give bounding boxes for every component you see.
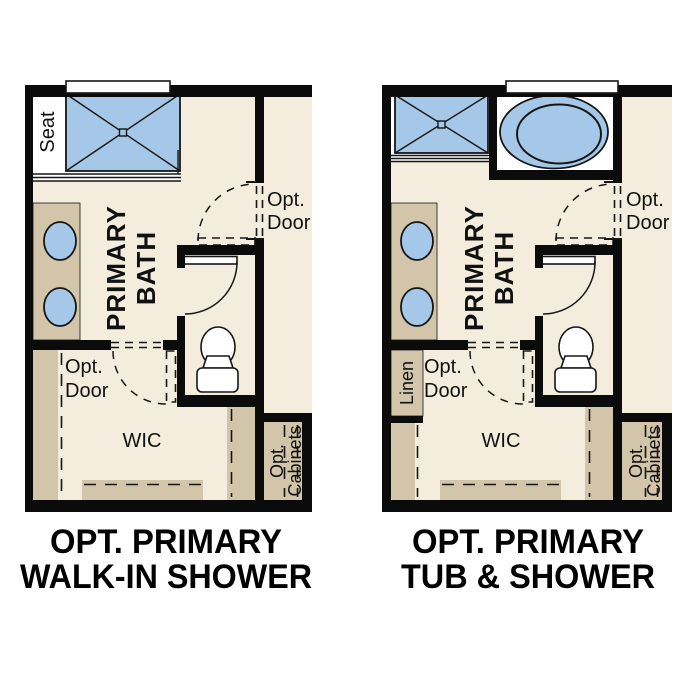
plan-tub-shower: PRIMARY BATH Opt. Door Opt. Door Linen W… bbox=[382, 81, 672, 596]
plan-caption: WALK-IN SHOWER bbox=[20, 558, 312, 596]
closet-shelf-bottom bbox=[82, 480, 203, 500]
floorplan-page: Seat PRIMARY BATH Opt. Door Opt. Door WI… bbox=[0, 0, 687, 687]
window bbox=[66, 81, 170, 93]
wic-label: WIC bbox=[123, 430, 162, 452]
opt-door-label: Door bbox=[65, 380, 109, 402]
linen-label: Linen bbox=[397, 361, 417, 405]
room-label: BATH bbox=[489, 231, 519, 305]
window bbox=[506, 81, 618, 93]
opt-door-label: Opt. bbox=[424, 356, 462, 378]
sink-fixture bbox=[44, 222, 76, 260]
plan-caption: OPT. PRIMARY bbox=[412, 523, 644, 561]
plan-caption: OPT. PRIMARY bbox=[50, 523, 282, 561]
vanity bbox=[33, 203, 80, 340]
plan-walk-in-shower: Seat PRIMARY BATH Opt. Door Opt. Door WI… bbox=[20, 81, 312, 596]
opt-cabinets-label: Opt. bbox=[626, 444, 646, 478]
shower-drain bbox=[120, 129, 127, 136]
toilet-seat-hinge bbox=[561, 356, 591, 368]
sink-fixture bbox=[401, 222, 433, 260]
door-leaf bbox=[542, 257, 595, 265]
closet-shelf-left bbox=[391, 423, 415, 500]
opt-door-label: Door bbox=[626, 212, 670, 234]
closet-shelf-left bbox=[33, 350, 58, 500]
tub-fixture bbox=[497, 96, 613, 171]
opt-cabinets-label: Opt. bbox=[267, 444, 287, 478]
wic-label: WIC bbox=[482, 430, 521, 452]
opt-door-label: Opt. bbox=[626, 189, 664, 211]
toilet-seat-hinge bbox=[203, 356, 233, 368]
opt-cabinets-label: Cabinets bbox=[644, 425, 664, 496]
floorplan-drawing: Seat PRIMARY BATH Opt. Door Opt. Door WI… bbox=[0, 0, 687, 687]
door-leaf bbox=[184, 257, 237, 265]
room-label: PRIMARY bbox=[101, 205, 131, 331]
opt-cabinets-label: Cabinets bbox=[285, 425, 305, 496]
opt-door-label: Door bbox=[424, 380, 468, 402]
sink-fixture bbox=[44, 288, 76, 326]
seat-label: Seat bbox=[37, 111, 59, 153]
shower-drain bbox=[438, 121, 445, 128]
room-label: BATH bbox=[131, 231, 161, 305]
opt-door-label: Door bbox=[267, 212, 311, 234]
plan-caption: TUB & SHOWER bbox=[401, 558, 655, 596]
toilet-tank bbox=[197, 368, 238, 392]
closet-shelf-bottom bbox=[440, 480, 561, 500]
sink-fixture bbox=[401, 288, 433, 326]
opt-door-label: Opt. bbox=[267, 189, 305, 211]
vanity bbox=[391, 203, 437, 340]
room-label: PRIMARY bbox=[459, 205, 489, 331]
shower-fixture bbox=[391, 95, 489, 162]
toilet-tank bbox=[555, 368, 596, 392]
opt-door-label: Opt. bbox=[65, 356, 103, 378]
